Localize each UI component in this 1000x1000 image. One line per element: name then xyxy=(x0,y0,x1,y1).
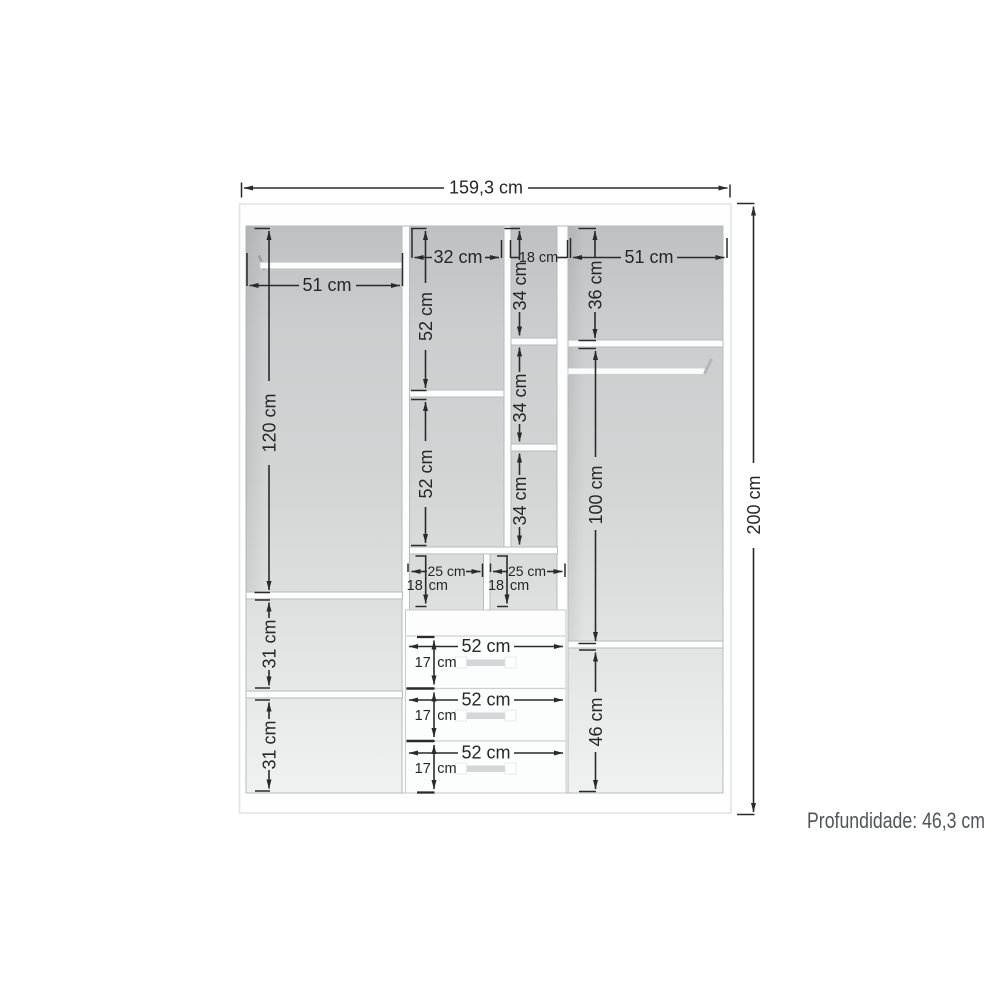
svg-text:51 cm: 51 cm xyxy=(624,247,673,267)
svg-text:52 cm: 52 cm xyxy=(461,690,510,710)
svg-text:34 cm: 34 cm xyxy=(510,373,530,422)
svg-text:34 cm: 34 cm xyxy=(510,476,530,525)
svg-text:46 cm: 46 cm xyxy=(586,697,606,746)
svg-text:17: 17 xyxy=(415,708,431,724)
svg-text:34 cm: 34 cm xyxy=(510,261,530,310)
svg-text:36 cm: 36 cm xyxy=(586,260,606,309)
svg-text:17: 17 xyxy=(415,761,431,777)
svg-text:25 cm: 25 cm xyxy=(427,563,465,579)
svg-text:cm: cm xyxy=(437,708,456,724)
svg-text:159,3 cm: 159,3 cm xyxy=(449,178,523,198)
svg-text:32 cm: 32 cm xyxy=(433,247,482,267)
svg-text:51 cm: 51 cm xyxy=(302,275,351,295)
svg-text:18: 18 xyxy=(488,578,504,594)
svg-text:25 cm: 25 cm xyxy=(508,563,546,579)
svg-text:31 cm: 31 cm xyxy=(260,720,280,769)
svg-text:cm: cm xyxy=(429,578,448,594)
svg-text:120 cm: 120 cm xyxy=(260,393,280,452)
svg-text:52 cm: 52 cm xyxy=(416,292,436,341)
svg-text:cm: cm xyxy=(510,578,529,594)
svg-text:200 cm: 200 cm xyxy=(744,475,764,534)
svg-text:18: 18 xyxy=(407,578,423,594)
svg-text:52 cm: 52 cm xyxy=(461,743,510,763)
svg-text:17: 17 xyxy=(415,655,431,671)
svg-text:cm: cm xyxy=(437,761,456,777)
svg-text:cm: cm xyxy=(437,655,456,671)
svg-text:31 cm: 31 cm xyxy=(260,619,280,668)
svg-text:52 cm: 52 cm xyxy=(461,636,510,656)
svg-text:Profundidade: 46,3 cm: Profundidade: 46,3 cm xyxy=(807,808,985,833)
svg-text:100 cm: 100 cm xyxy=(586,465,606,524)
svg-text:52 cm: 52 cm xyxy=(416,449,436,498)
